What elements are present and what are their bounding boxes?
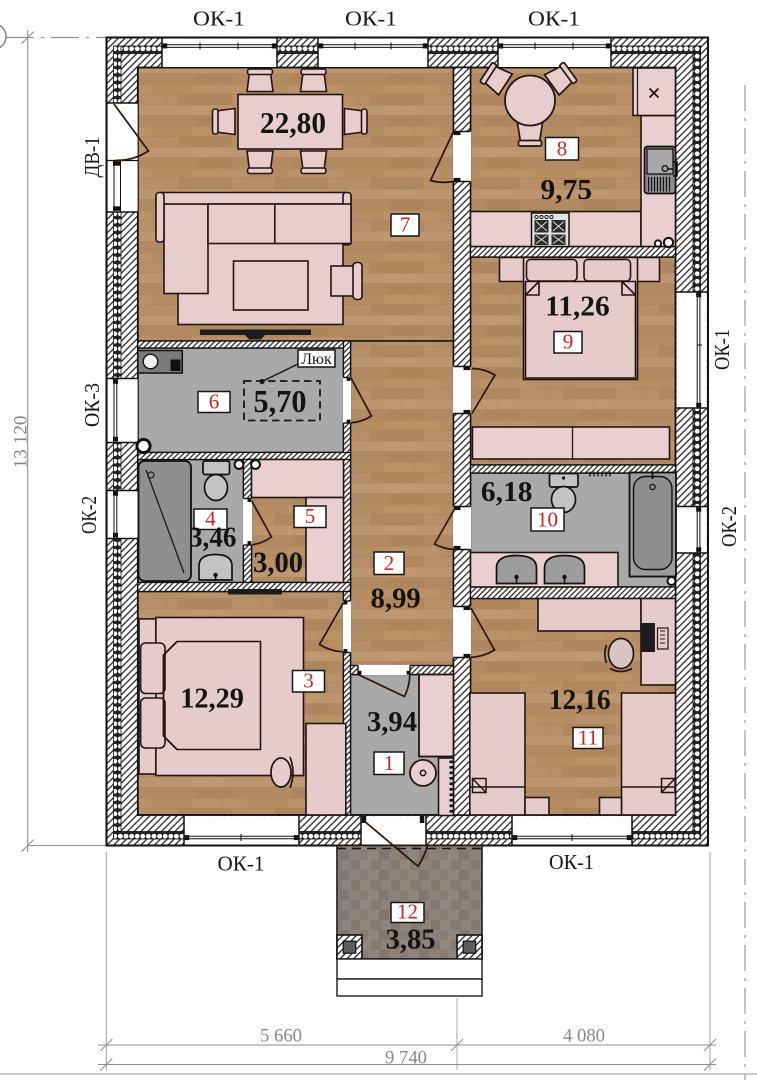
svg-text:8,99: 8,99 [371,584,421,615]
svg-text:6: 6 [209,390,220,414]
svg-text:13 120: 13 120 [11,416,32,469]
svg-text:8: 8 [557,137,568,161]
svg-text:3,46: 3,46 [189,523,236,554]
svg-text:ОК-1: ОК-1 [218,852,265,876]
svg-text:9: 9 [563,330,574,354]
svg-text:ОК-2: ОК-2 [717,506,741,547]
svg-text:10: 10 [537,508,558,532]
svg-text:7: 7 [400,213,411,237]
svg-text:ОК-1: ОК-1 [528,7,580,31]
svg-text:9 740: 9 740 [385,1048,427,1069]
svg-text:12,29: 12,29 [180,683,244,715]
svg-text:3,94: 3,94 [367,707,417,738]
svg-text:5: 5 [305,504,316,528]
svg-text:11,26: 11,26 [545,291,610,323]
svg-text:1: 1 [384,751,395,775]
svg-text:Люк: Люк [301,351,332,368]
svg-text:12,16: 12,16 [549,684,611,716]
svg-text:ОК-1: ОК-1 [193,7,245,31]
svg-text:5 660: 5 660 [260,1026,302,1047]
svg-text:ОК-1: ОК-1 [710,329,734,370]
svg-text:ОК-2: ОК-2 [77,496,101,534]
svg-text:6,18: 6,18 [481,477,533,508]
svg-text:ОК-3: ОК-3 [80,383,104,427]
svg-text:3,00: 3,00 [253,546,303,579]
svg-text:ОК-1: ОК-1 [345,7,397,31]
svg-text:2: 2 [384,551,395,575]
svg-text:3: 3 [303,669,314,693]
svg-text:ОК-1: ОК-1 [549,850,594,874]
svg-text:ДВ-1: ДВ-1 [80,137,104,178]
svg-text:11: 11 [578,726,598,750]
svg-text:22,80: 22,80 [260,105,326,140]
svg-text:12: 12 [397,900,418,924]
svg-text:3,85: 3,85 [386,925,436,956]
svg-text:9,75: 9,75 [541,174,593,206]
svg-text:5,70: 5,70 [254,383,307,419]
svg-text:4 080: 4 080 [563,1026,605,1047]
